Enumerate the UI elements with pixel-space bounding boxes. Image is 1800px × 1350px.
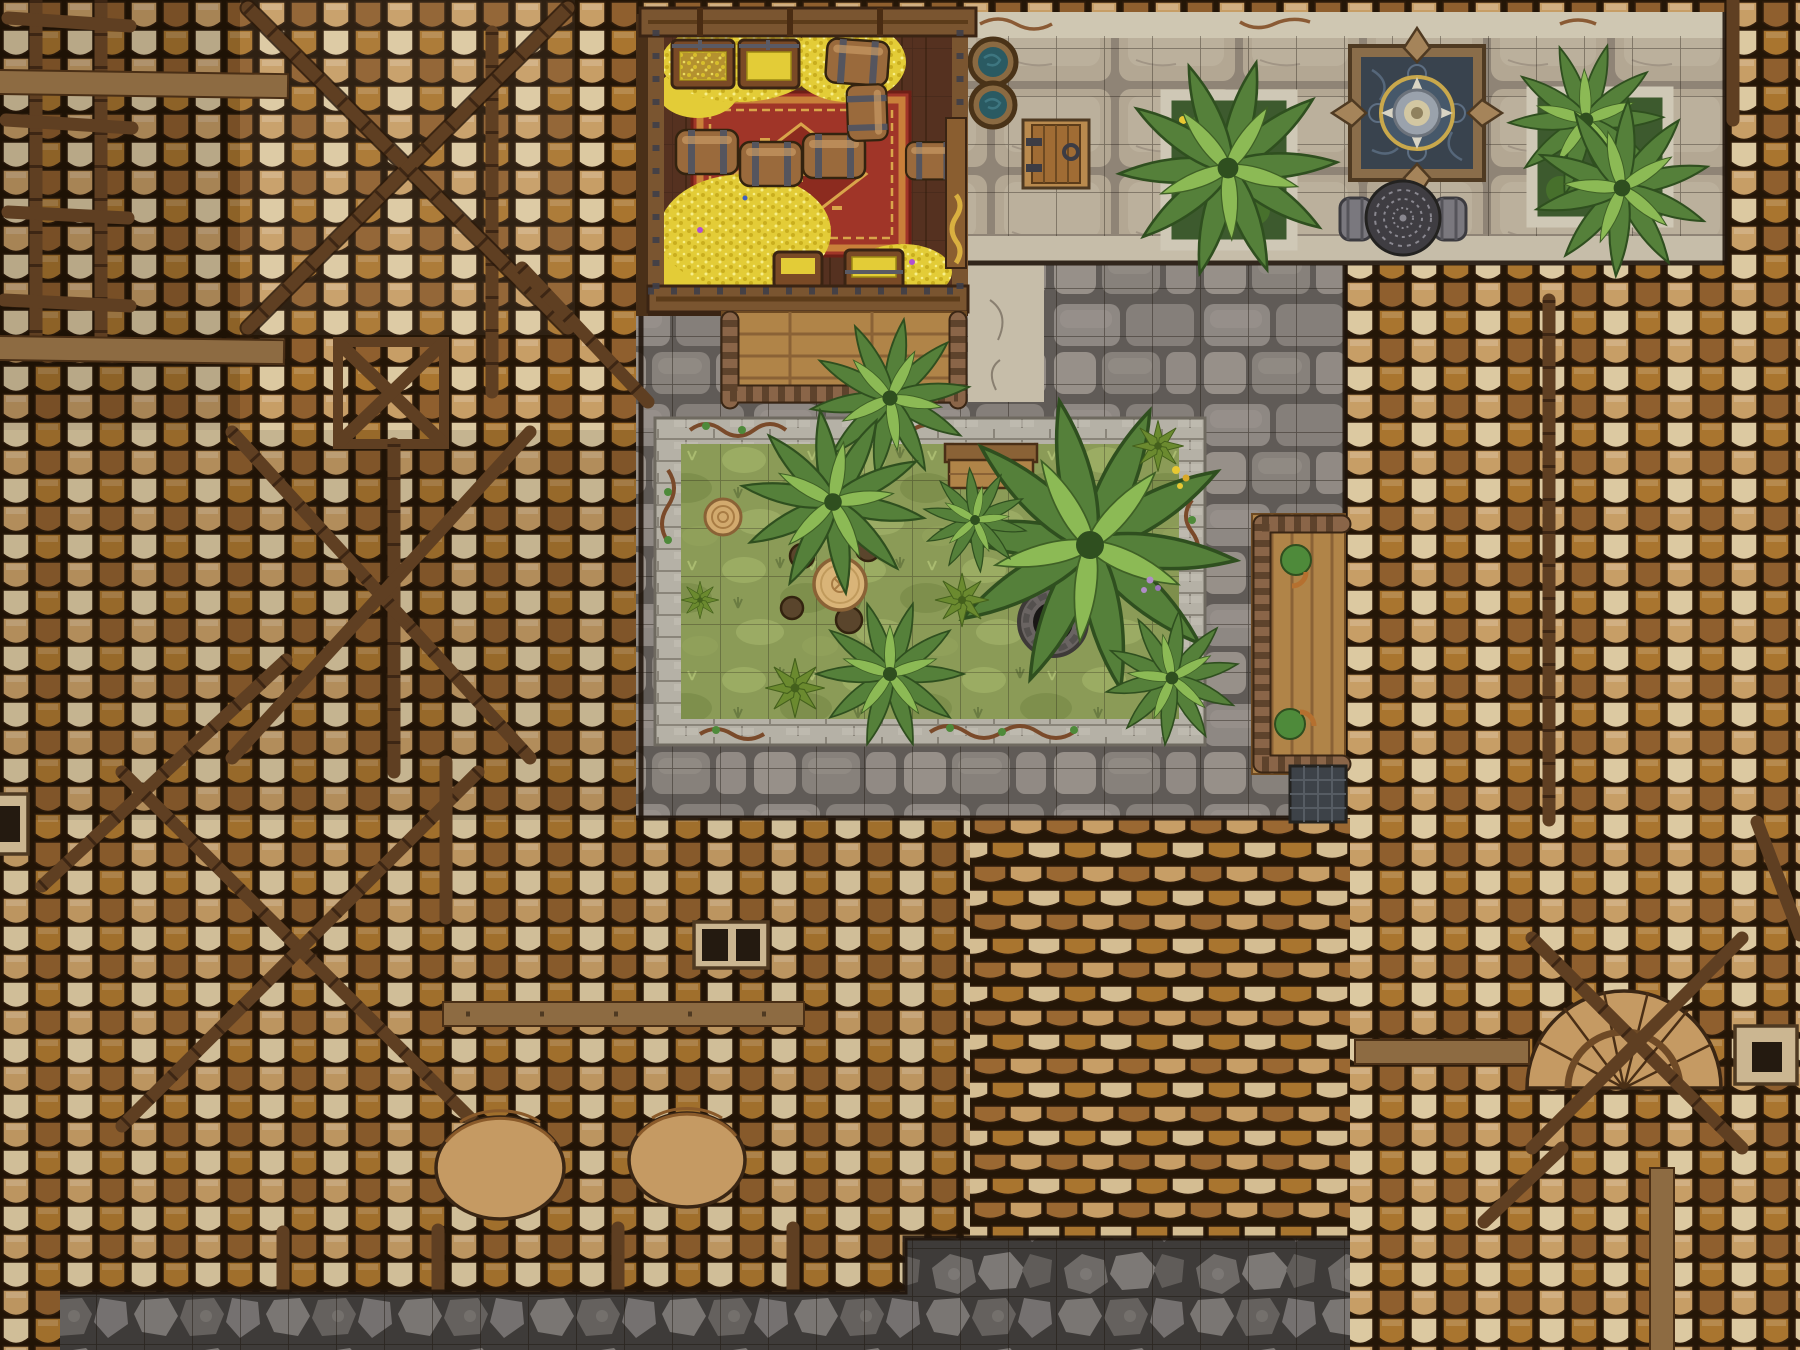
fountain-spout: [1411, 107, 1423, 119]
ladder-rung-4: [4, 300, 130, 306]
cellar-trapdoor: [1023, 120, 1089, 188]
barrel-1: [676, 130, 738, 174]
ladder-rung-1: [8, 18, 130, 26]
trapdoor-hinge-top: [1026, 138, 1042, 146]
shrub-spiky-4: [681, 581, 719, 619]
shrub-spiky-1: [765, 658, 824, 717]
battlemap-svg: [0, 0, 1800, 1350]
plank-beam-w: [0, 348, 272, 352]
roof-shade-leftmid: [0, 430, 648, 820]
terrace-north-band: [968, 12, 1725, 38]
open-chest-2-gold: [747, 52, 791, 80]
roof-rows-section: [970, 818, 1350, 1238]
open-chest-1-goldfill: [680, 52, 726, 80]
chimney-west: [0, 794, 28, 854]
barrel-4: [825, 38, 890, 86]
ladder-rung-3: [8, 212, 128, 218]
fountain: [1332, 28, 1502, 198]
chimney-flue-1: [702, 929, 728, 961]
shrub-spiky-2: [935, 573, 989, 627]
water-barrel-1-water: [978, 47, 1008, 77]
small-chest-gold: [781, 258, 815, 274]
room-wall-west: [648, 30, 664, 300]
chimney-east-flue: [1752, 1042, 1782, 1072]
roof-shade-bottom: [0, 815, 970, 1350]
chimney-west-flue: [0, 806, 20, 842]
shrub-spiky-3: [1132, 420, 1183, 471]
stump-top: [705, 499, 741, 535]
water-barrel-2-water: [979, 91, 1007, 119]
balcony: [1252, 514, 1345, 774]
chimney-east: [1735, 1026, 1797, 1084]
skylight-hatch: [1290, 766, 1346, 822]
roof-rows-tiles: [970, 818, 1350, 1238]
barrel-2: [740, 142, 802, 186]
ladder-rung-2: [6, 120, 132, 128]
chimney-flue-2: [736, 929, 760, 961]
terrace-side-landing: [968, 262, 1044, 402]
trapdoor-hinge-bottom: [1026, 164, 1042, 172]
chimney-twin: [694, 922, 768, 968]
plank-beam-nw: [0, 82, 276, 86]
stool-4: [781, 597, 803, 619]
tree-stump: [705, 499, 741, 535]
iron-table-center: [1400, 215, 1407, 222]
balcony-leaves-top: [1281, 545, 1311, 575]
battlemap-canvas: [0, 0, 1800, 1350]
treasure-room: [636, 8, 976, 316]
barrel-5: [846, 84, 888, 141]
